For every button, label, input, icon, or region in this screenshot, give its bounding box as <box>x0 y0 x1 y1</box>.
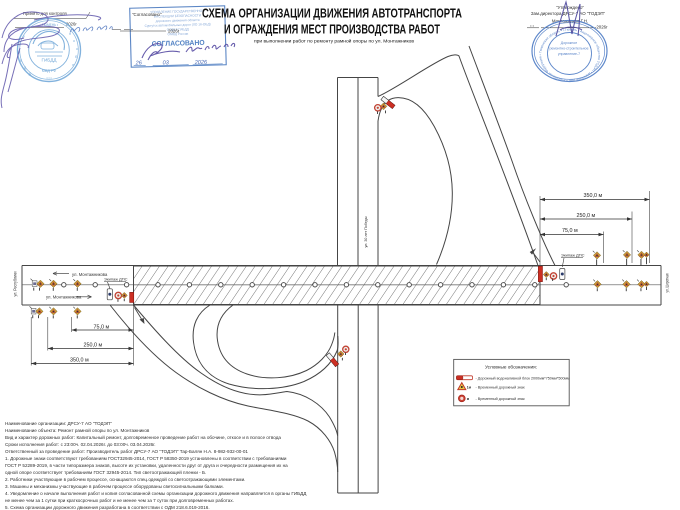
svg-text:1. Дорожные знаки соответствую: 1. Дорожные знаки соответствуют требован… <box>5 456 287 461</box>
svg-text:СОГЛАСОВАНО: СОГЛАСОВАНО <box>152 38 206 48</box>
svg-text:Наименование объекта: Ремонт р: Наименование объекта: Ремонт рамной опор… <box>5 427 150 433</box>
svg-text:.: . <box>68 70 69 74</box>
svg-text:2026г: 2026г <box>596 25 608 30</box>
svg-text:75,0 м: 75,0 м <box>94 325 110 331</box>
svg-text:Вид и характер дорожных работ:: Вид и характер дорожных работ: Капитальн… <box>5 434 281 440</box>
svg-text:" ": " " <box>530 25 535 30</box>
svg-text:3. Машины и механизмы участвую: 3. Машины и механизмы участвующие в рабо… <box>5 484 224 489</box>
svg-text:Дорожное: Дорожное <box>561 41 577 45</box>
svg-text:ул. Монтажникова: ул. Монтажникова <box>72 272 108 277</box>
svg-text:• • •: • • • <box>46 76 51 80</box>
svg-text:75,0 м: 75,0 м <box>562 228 578 234</box>
svg-text:л: л <box>72 63 74 67</box>
svg-text:- Временный дорожный знак: - Временный дорожный знак <box>476 385 525 389</box>
svg-text:1м: 1м <box>467 385 472 389</box>
svg-text:одной опоре соответствует треб: одной опоре соответствует требованиям ГО… <box>5 469 206 475</box>
svg-text:ул. Республики: ул. Республики <box>13 271 18 297</box>
svg-text:при выполнении работ по ремонт: при выполнении работ по ремонту рамной о… <box>254 39 415 44</box>
svg-text:МВД РФ: МВД РФ <box>42 69 57 73</box>
svg-text:350,0 м: 350,0 м <box>70 357 89 363</box>
svg-text:ул. Широтная: ул. Широтная <box>665 274 670 293</box>
svg-text:не менее чем за 1 сутки при кр: не менее чем за 1 сутки при краткосрочны… <box>5 498 234 503</box>
svg-text:250,0 м: 250,0 м <box>84 342 103 348</box>
svg-text:ГИБДД: ГИБДД <box>41 58 57 63</box>
svg-text:Экипаж ДПС: Экипаж ДПС <box>561 253 585 258</box>
svg-text:СХЕМА ОРГАНИЗАЦИИ ДВИЖЕНИЯ АВТ: СХЕМА ОРГАНИЗАЦИИ ДВИЖЕНИЯ АВТОТРАНСПОРТ… <box>202 5 462 20</box>
svg-text:2. Работники участвующие в раб: 2. Работники участвующие в рабочем проце… <box>5 476 245 482</box>
svg-text:Экипаж ДПС: Экипаж ДПС <box>104 277 128 282</box>
svg-text:ГОСТ Р 52289-2019, в части тип: ГОСТ Р 52289-2019, в части типоразмера з… <box>5 463 288 468</box>
svg-text:Сроки исполнения работ: с 23:0: Сроки исполнения работ: с 23:00ч. 02.04.… <box>5 442 156 447</box>
svg-text:"Согласовано": "Согласовано" <box>132 12 162 17</box>
svg-text:о: о <box>73 39 75 43</box>
svg-text:ремонтно-строительное: ремонтно-строительное <box>549 47 588 51</box>
svg-text:И ОГРАЖДЕНИЯ МЕСТ ПРОИЗВОДСТВА: И ОГРАЖДЕНИЯ МЕСТ ПРОИЗВОДСТВА РАБОТ <box>224 21 440 36</box>
svg-text:350,0 м: 350,0 м <box>584 193 603 199</box>
svg-text:управление-7: управление-7 <box>558 52 580 56</box>
svg-text:5. Схема организации дорожного: 5. Схема организации дорожного движения … <box>5 505 210 510</box>
svg-text:Г: Г <box>19 43 21 47</box>
svg-text:ул. 30 лет Победы: ул. 30 лет Победы <box>364 216 368 247</box>
svg-text:2026: 2026 <box>194 60 208 66</box>
svg-text:п: п <box>69 32 71 36</box>
svg-text:Наименование организации: ДРСУ: Наименование организации: ДРСУ-7 АО "ТОД… <box>5 421 112 426</box>
svg-text:250,0 м: 250,0 м <box>577 213 596 219</box>
svg-text:б: б <box>75 55 77 59</box>
svg-text:2026г: 2026г <box>168 29 180 34</box>
svg-text:- Временный дорожный знак: - Временный дорожный знак <box>476 397 525 401</box>
svg-text:Условные обозначения:: Условные обозначения: <box>485 364 537 369</box>
svg-text:Ответственный за проведение ра: Ответственный за проведение работ: Произ… <box>5 448 248 454</box>
svg-text:- Дорожный водоналивной блок 2: - Дорожный водоналивной блок 2000мм*750м… <box>476 377 571 381</box>
svg-text:4. Уведомление о начале выполн: 4. Уведомление о начале выполнения работ… <box>5 490 307 496</box>
svg-text:о: о <box>76 47 78 51</box>
